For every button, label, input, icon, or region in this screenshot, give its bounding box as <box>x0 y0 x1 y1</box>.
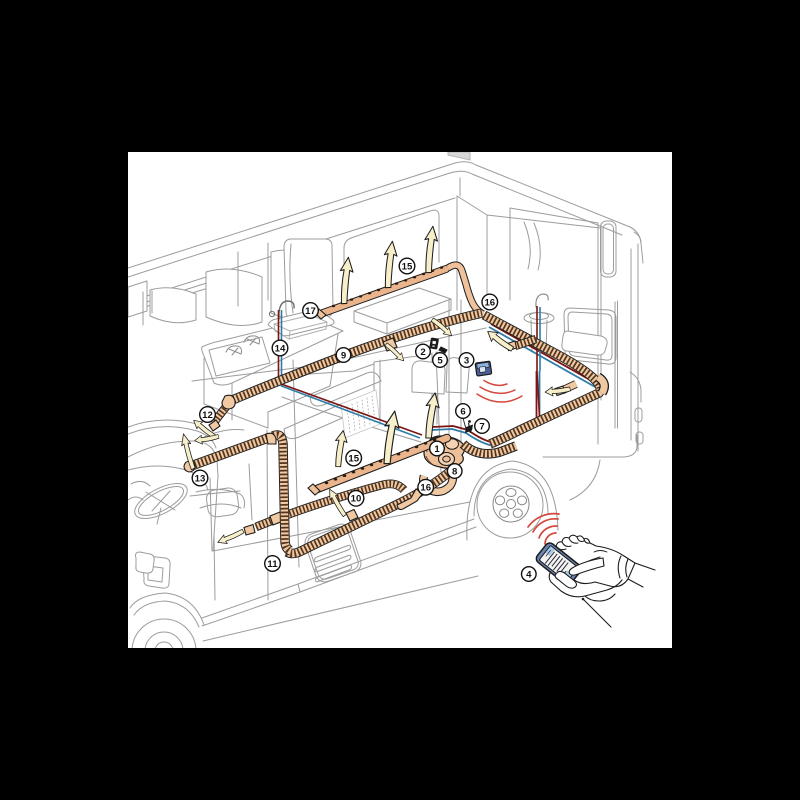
svg-text:16: 16 <box>484 297 495 308</box>
svg-text:15: 15 <box>348 453 359 464</box>
svg-text:5: 5 <box>437 355 443 366</box>
svg-text:12: 12 <box>202 410 213 421</box>
svg-text:11: 11 <box>267 559 278 570</box>
svg-text:16: 16 <box>420 483 431 494</box>
svg-text:7: 7 <box>479 421 484 432</box>
svg-text:13: 13 <box>195 473 206 484</box>
svg-text:3: 3 <box>464 355 469 366</box>
svg-text:2: 2 <box>420 347 425 358</box>
svg-text:17: 17 <box>305 306 316 317</box>
svg-text:6: 6 <box>460 406 465 417</box>
svg-text:15: 15 <box>402 261 413 272</box>
svg-text:1: 1 <box>434 444 440 455</box>
svg-text:8: 8 <box>452 466 458 477</box>
svg-text:10: 10 <box>351 494 362 505</box>
svg-text:9: 9 <box>341 350 346 361</box>
svg-text:4: 4 <box>526 569 532 580</box>
svg-text:14: 14 <box>275 343 286 354</box>
